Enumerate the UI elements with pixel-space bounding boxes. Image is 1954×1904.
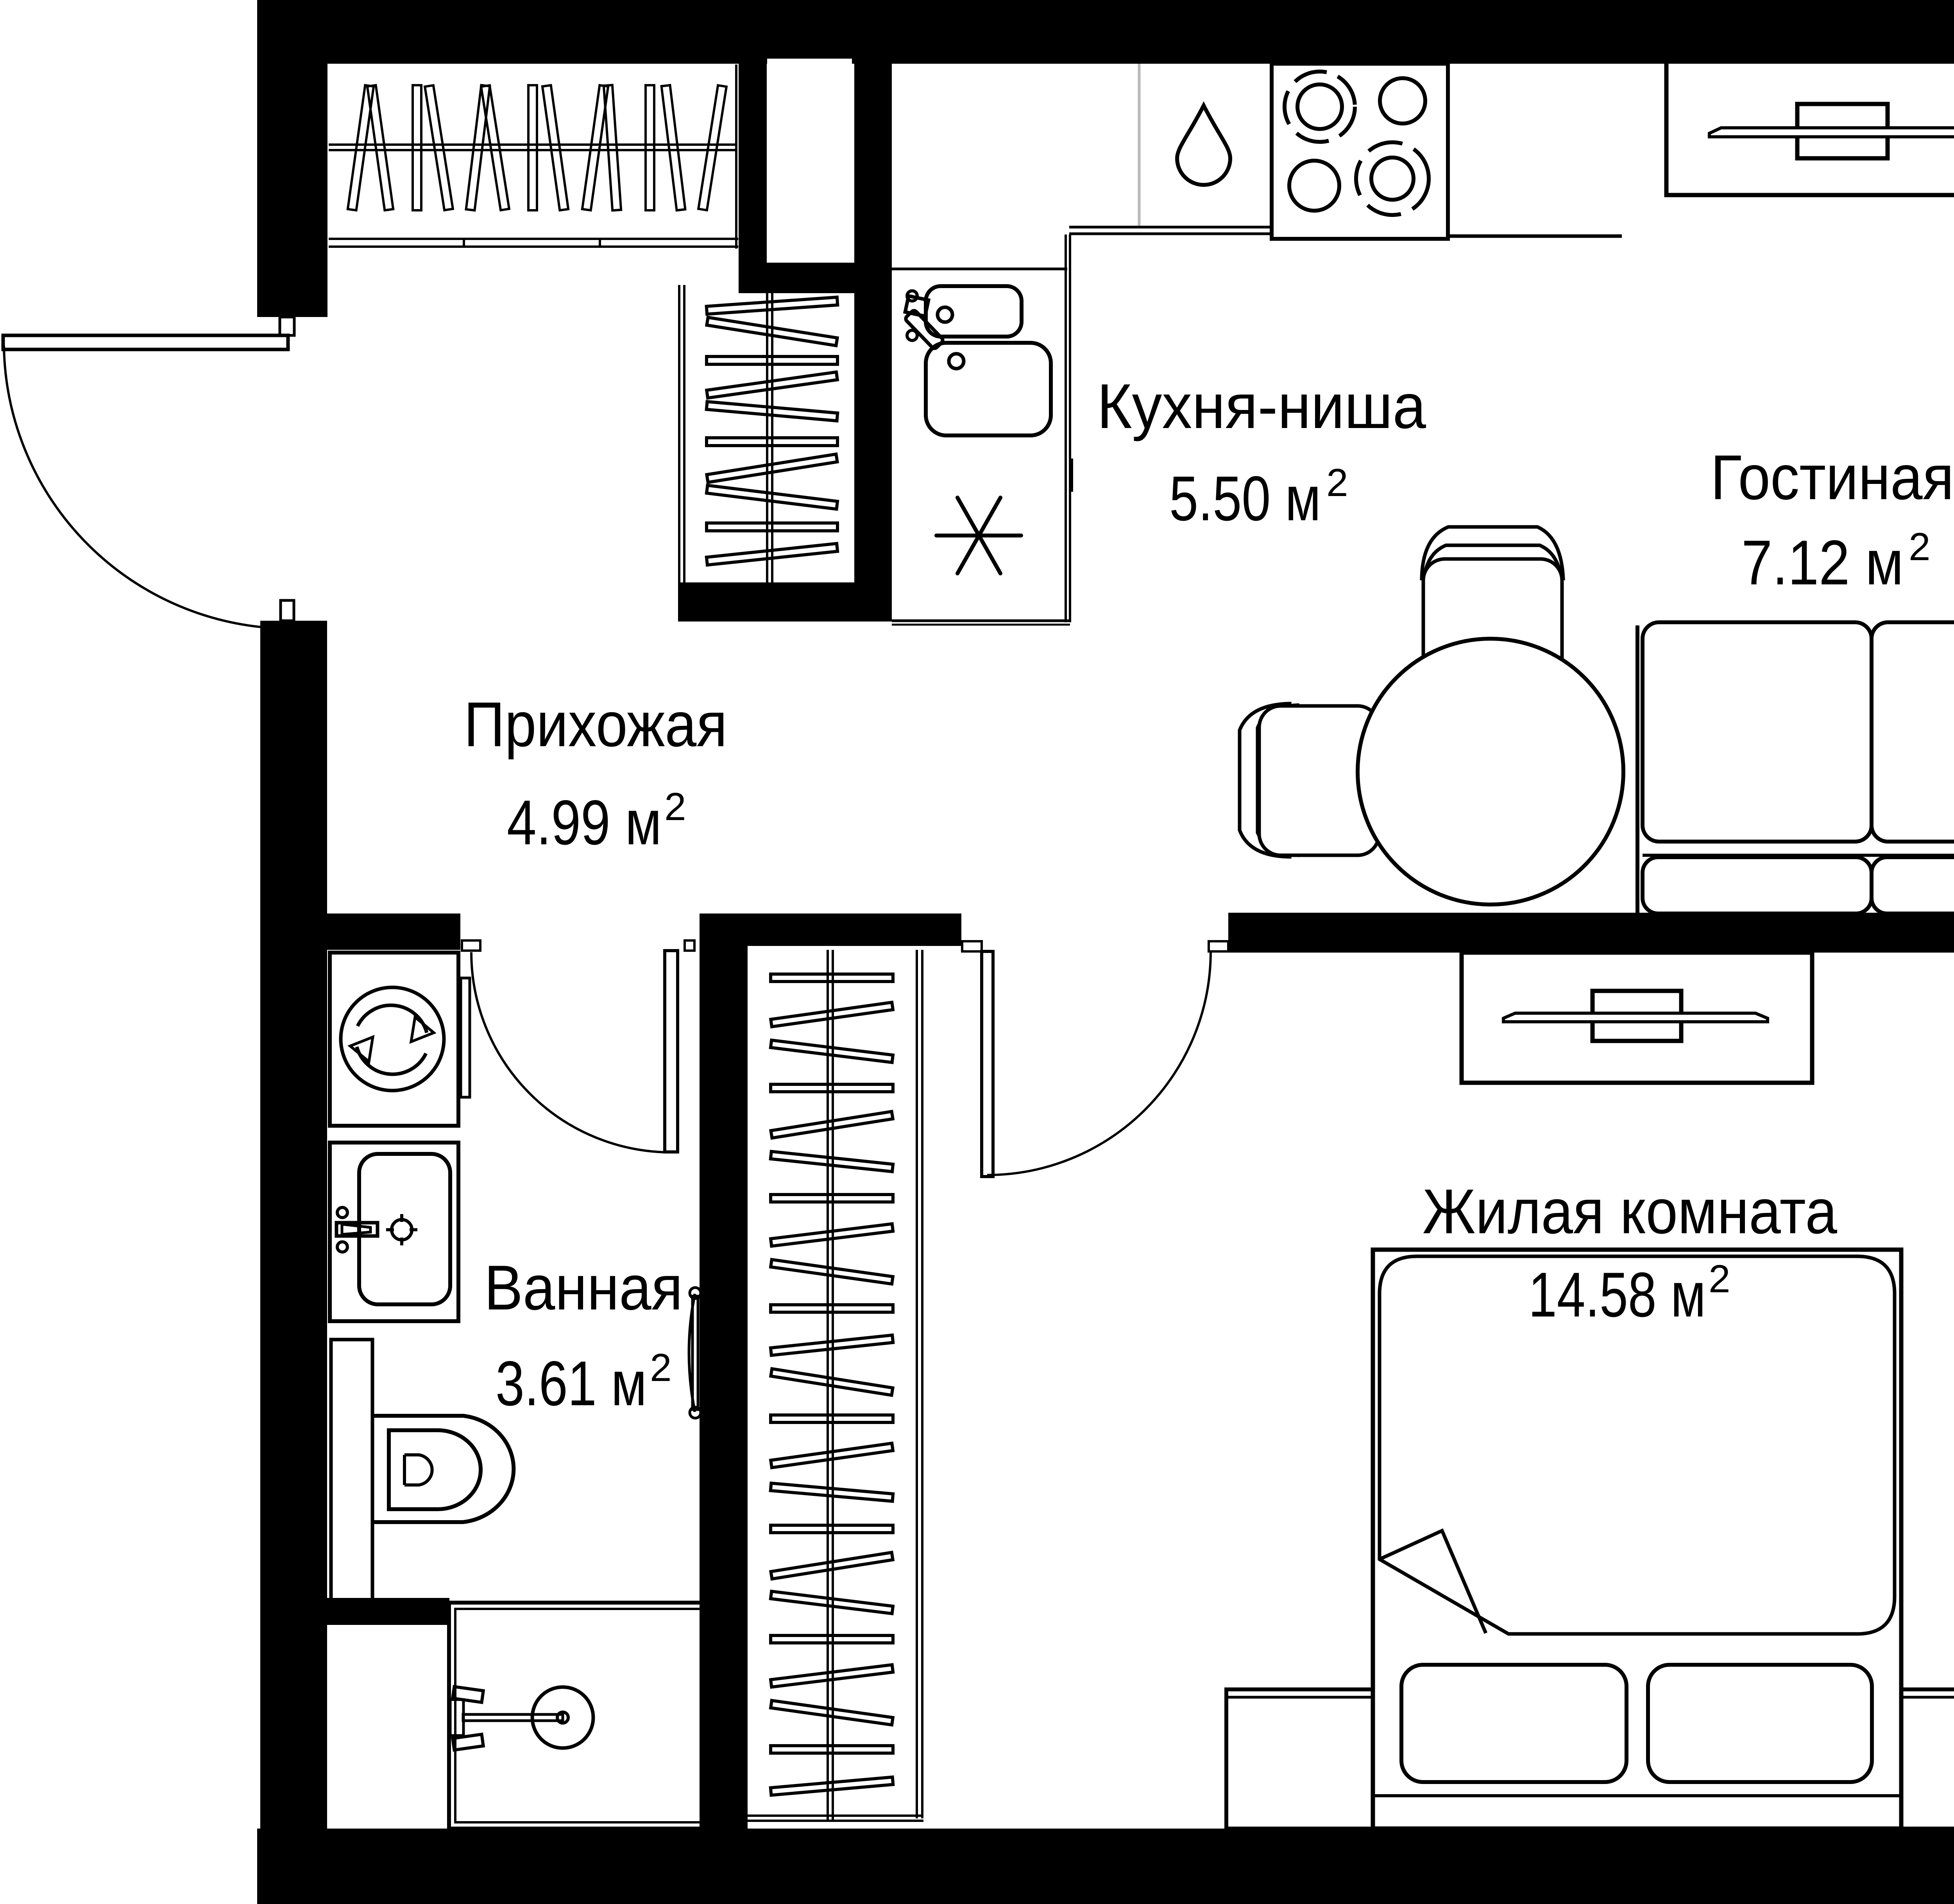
svg-text:2: 2 — [1709, 1257, 1730, 1301]
svg-text:2: 2 — [664, 785, 686, 829]
svg-text:Жилая комната: Жилая комната — [1423, 1176, 1838, 1247]
svg-text:Прихожая: Прихожая — [464, 689, 727, 760]
svg-text:2: 2 — [650, 1346, 672, 1390]
svg-text:Гостиная: Гостиная — [1711, 442, 1954, 513]
svg-text:2: 2 — [1326, 461, 1348, 505]
svg-text:Кухня-ниша: Кухня-ниша — [1097, 371, 1426, 442]
svg-text:3.61 м: 3.61 м — [496, 1348, 647, 1419]
svg-text:14.58 м: 14.58 м — [1528, 1259, 1706, 1330]
svg-text:7.12 м: 7.12 м — [1741, 527, 1904, 598]
svg-text:4.99 м: 4.99 м — [507, 787, 662, 858]
svg-text:2: 2 — [1909, 525, 1931, 569]
svg-text:Ванная: Ванная — [484, 1252, 683, 1323]
svg-text:5.50 м: 5.50 м — [1169, 463, 1321, 534]
